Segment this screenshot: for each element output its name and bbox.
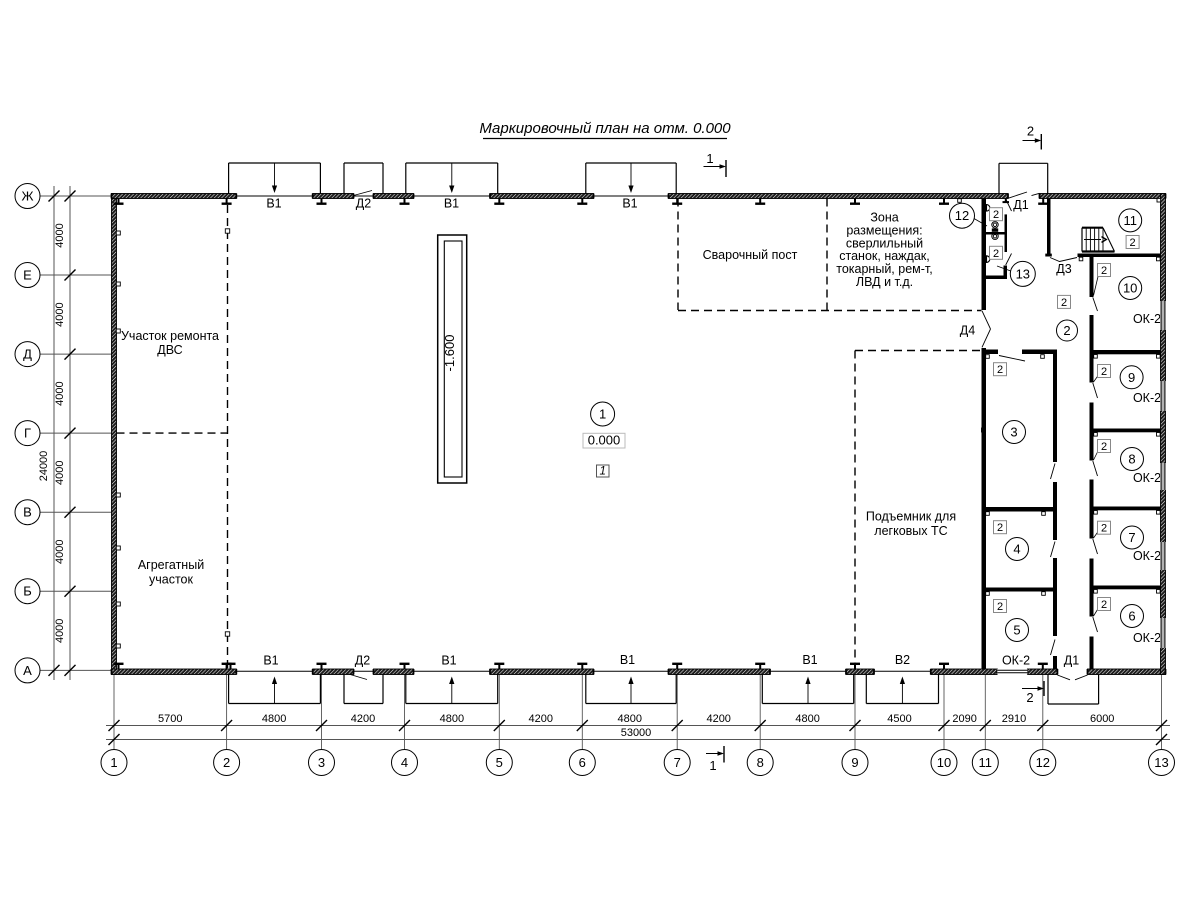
- svg-text:4200: 4200: [706, 713, 730, 725]
- svg-text:2: 2: [993, 248, 999, 260]
- svg-text:-1.600: -1.600: [442, 335, 457, 372]
- svg-text:В2: В2: [895, 653, 910, 667]
- svg-text:4000: 4000: [54, 539, 66, 563]
- svg-text:11: 11: [1123, 213, 1137, 228]
- svg-text:24000: 24000: [38, 451, 50, 482]
- svg-text:2: 2: [1130, 237, 1136, 249]
- svg-text:размещения:: размещения:: [846, 223, 922, 237]
- svg-text:4200: 4200: [351, 713, 375, 725]
- svg-text:6: 6: [579, 755, 586, 770]
- svg-text:Д2: Д2: [355, 654, 370, 668]
- svg-text:2: 2: [1101, 599, 1107, 611]
- svg-text:2: 2: [1061, 297, 1067, 309]
- svg-text:2: 2: [1101, 265, 1107, 277]
- svg-text:4000: 4000: [54, 302, 66, 326]
- svg-text:ОК-2: ОК-2: [1133, 631, 1161, 645]
- svg-text:ОК-2: ОК-2: [1133, 312, 1161, 326]
- svg-text:Ж: Ж: [21, 189, 33, 204]
- svg-text:2: 2: [1101, 523, 1107, 535]
- svg-text:4800: 4800: [618, 713, 642, 725]
- svg-text:Е: Е: [23, 268, 32, 283]
- svg-text:8: 8: [757, 755, 764, 770]
- svg-text:4: 4: [401, 755, 408, 770]
- svg-text:1: 1: [706, 151, 713, 166]
- svg-text:9: 9: [1128, 370, 1135, 385]
- svg-text:Д4: Д4: [960, 324, 975, 338]
- svg-text:2: 2: [223, 755, 230, 770]
- svg-text:4000: 4000: [54, 223, 66, 247]
- svg-text:В1: В1: [620, 653, 635, 667]
- svg-text:4800: 4800: [795, 713, 819, 725]
- svg-text:Сварочный пост: Сварочный пост: [703, 248, 798, 262]
- svg-text:13: 13: [1016, 266, 1030, 281]
- svg-text:7: 7: [1128, 530, 1135, 545]
- svg-text:4800: 4800: [262, 713, 286, 725]
- svg-text:12: 12: [1036, 755, 1050, 770]
- svg-text:2: 2: [993, 209, 999, 221]
- svg-text:5: 5: [1013, 623, 1020, 638]
- svg-text:2: 2: [1101, 366, 1107, 378]
- svg-text:ЛВД и т.д.: ЛВД и т.д.: [856, 275, 913, 289]
- svg-text:токарный, рем-т,: токарный, рем-т,: [836, 262, 932, 276]
- svg-text:4: 4: [1013, 542, 1020, 557]
- svg-text:0.000: 0.000: [588, 433, 621, 448]
- svg-text:В1: В1: [622, 197, 637, 211]
- svg-text:В1: В1: [266, 197, 281, 211]
- svg-text:2: 2: [1026, 690, 1033, 705]
- svg-text:ОК-2: ОК-2: [1133, 549, 1161, 563]
- svg-text:Д1: Д1: [1064, 654, 1079, 668]
- svg-text:2: 2: [997, 364, 1003, 376]
- svg-text:Д3: Д3: [1056, 262, 1071, 276]
- svg-text:9: 9: [851, 755, 858, 770]
- svg-text:12: 12: [955, 208, 969, 223]
- svg-text:В: В: [23, 505, 32, 520]
- svg-text:10: 10: [1123, 281, 1137, 296]
- svg-text:1: 1: [599, 465, 605, 477]
- svg-text:Б: Б: [23, 584, 32, 599]
- svg-text:11: 11: [979, 755, 993, 770]
- svg-text:ОК-2: ОК-2: [1133, 471, 1161, 485]
- svg-text:Маркировочный план на отм. 0.0: Маркировочный план на отм. 0.000: [479, 120, 731, 137]
- svg-text:13: 13: [1154, 755, 1168, 770]
- svg-text:ОК-2: ОК-2: [1133, 391, 1161, 405]
- svg-text:Д1: Д1: [1013, 198, 1028, 212]
- svg-text:1: 1: [599, 407, 606, 422]
- svg-text:2: 2: [1063, 323, 1070, 338]
- svg-text:В1: В1: [263, 654, 278, 668]
- svg-text:6: 6: [1128, 609, 1135, 624]
- svg-text:1: 1: [709, 758, 716, 773]
- svg-text:3: 3: [318, 755, 325, 770]
- svg-text:7: 7: [674, 755, 681, 770]
- svg-text:В1: В1: [441, 654, 456, 668]
- svg-text:2910: 2910: [1002, 713, 1026, 725]
- svg-text:5700: 5700: [158, 713, 182, 725]
- svg-text:1: 1: [110, 755, 117, 770]
- svg-text:ОК-2: ОК-2: [1002, 654, 1030, 668]
- svg-text:4200: 4200: [529, 713, 553, 725]
- svg-text:2: 2: [997, 601, 1003, 613]
- svg-text:В1: В1: [802, 653, 817, 667]
- svg-text:Г: Г: [24, 426, 31, 441]
- svg-text:5: 5: [496, 755, 503, 770]
- svg-text:сверлильный: сверлильный: [846, 236, 923, 250]
- svg-text:легковых ТС: легковых ТС: [874, 524, 947, 538]
- svg-text:53000: 53000: [621, 727, 652, 739]
- svg-text:2090: 2090: [952, 713, 976, 725]
- svg-text:ДВС: ДВС: [157, 343, 182, 357]
- svg-text:4500: 4500: [887, 713, 911, 725]
- svg-text:Подъемник для: Подъемник для: [866, 510, 956, 524]
- svg-text:В1: В1: [444, 197, 459, 211]
- svg-text:Д: Д: [23, 347, 32, 362]
- svg-text:2: 2: [997, 522, 1003, 534]
- svg-text:4000: 4000: [54, 381, 66, 405]
- svg-text:4800: 4800: [440, 713, 464, 725]
- svg-text:2: 2: [1027, 124, 1034, 139]
- svg-text:станок, наждак,: станок, наждак,: [839, 249, 929, 263]
- svg-text:А: А: [23, 663, 32, 678]
- svg-text:2: 2: [1101, 441, 1107, 453]
- svg-text:8: 8: [1128, 452, 1135, 467]
- svg-text:4000: 4000: [54, 619, 66, 643]
- svg-text:4000: 4000: [54, 460, 66, 484]
- svg-text:6000: 6000: [1090, 713, 1114, 725]
- svg-text:участок: участок: [149, 573, 194, 587]
- svg-text:Агрегатный: Агрегатный: [138, 558, 204, 572]
- svg-text:Д2: Д2: [356, 197, 371, 211]
- svg-text:Участок ремонта: Участок ремонта: [121, 329, 219, 343]
- svg-text:10: 10: [937, 755, 951, 770]
- svg-text:Зона: Зона: [870, 211, 898, 225]
- svg-text:3: 3: [1010, 425, 1017, 440]
